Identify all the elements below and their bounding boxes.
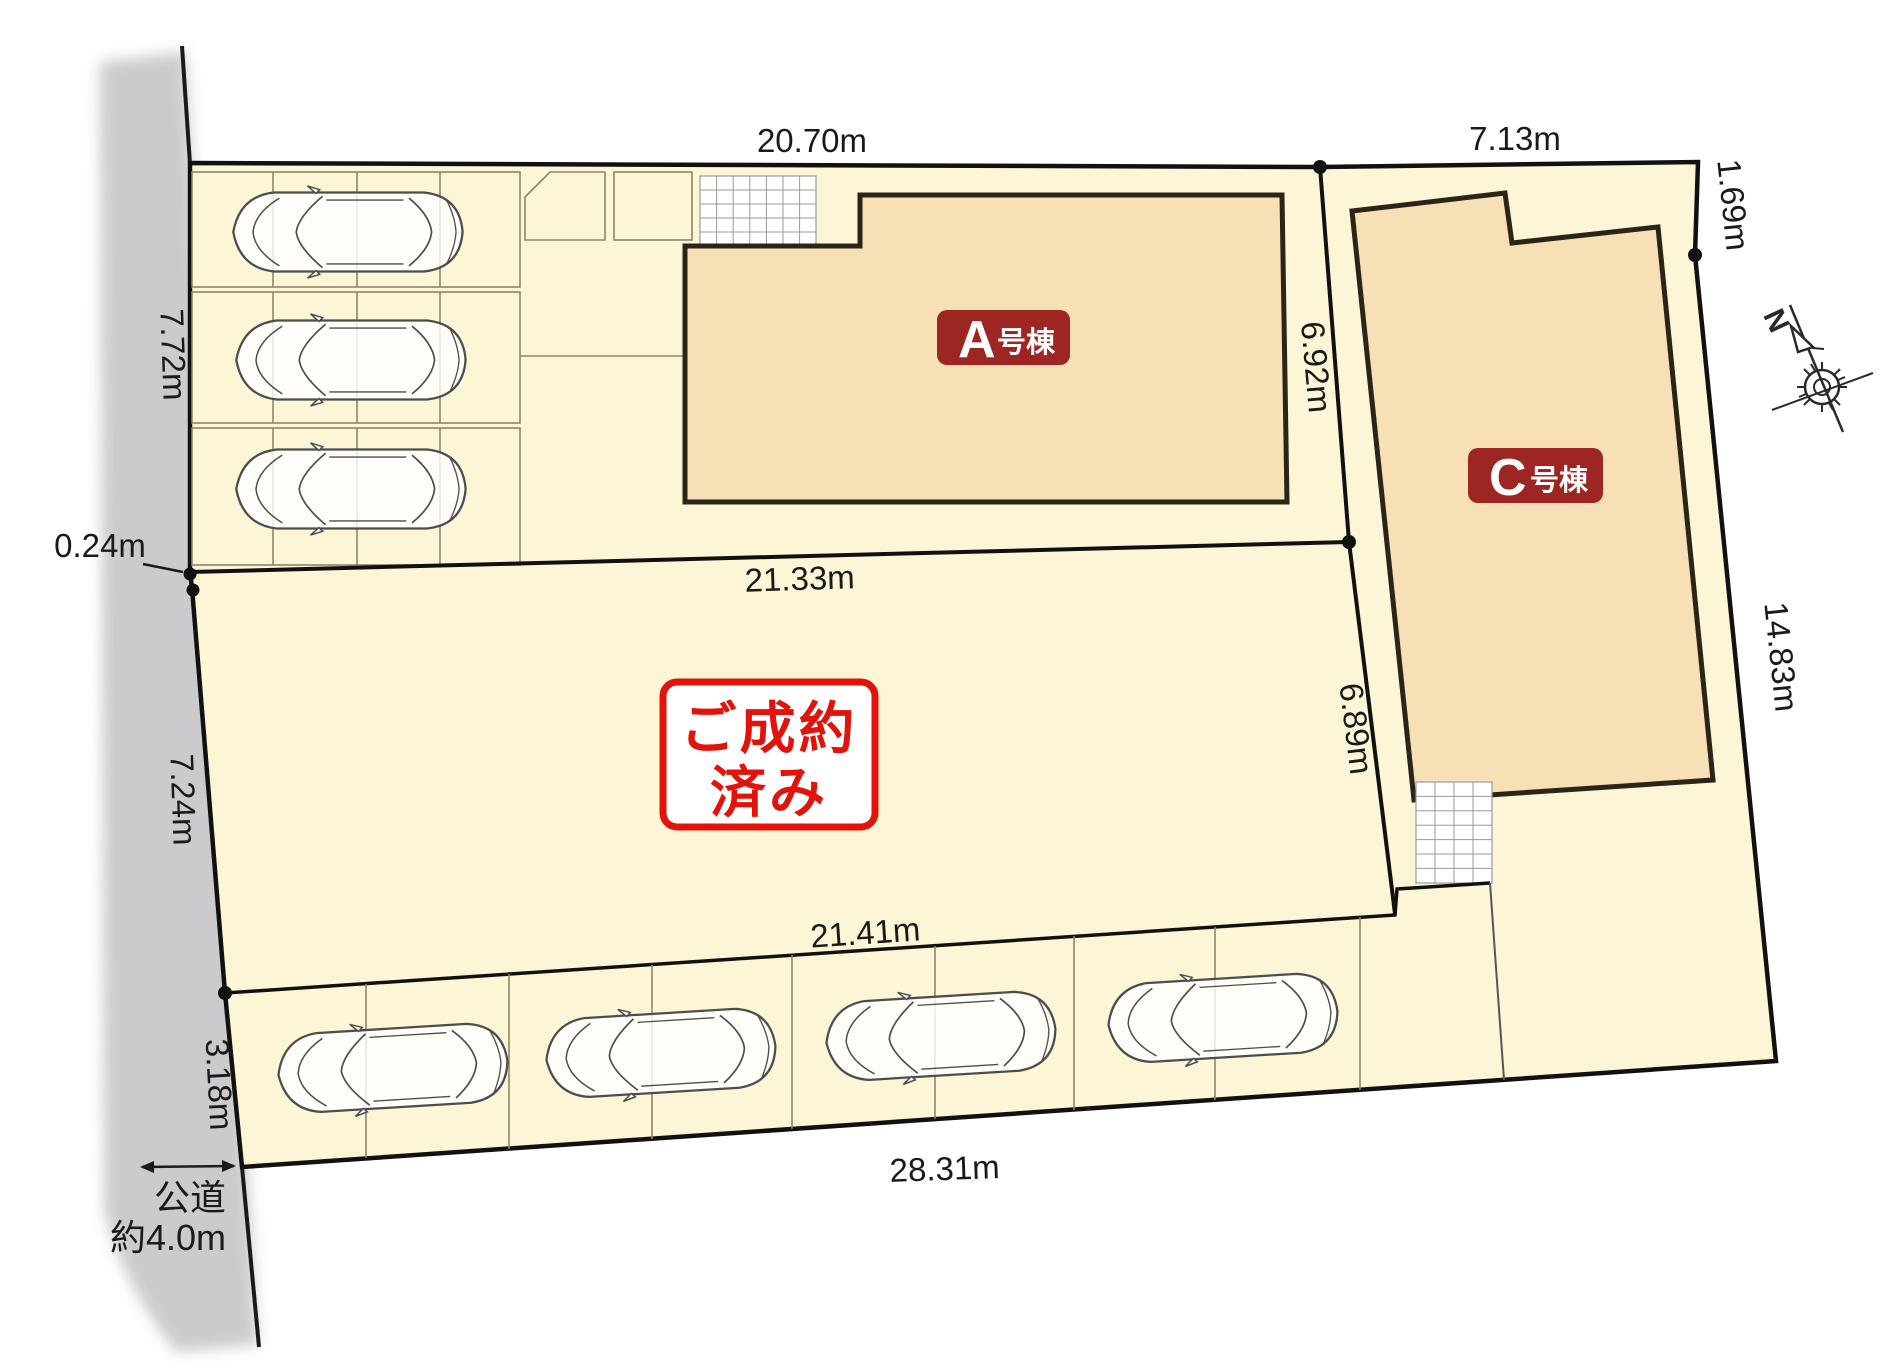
building-a-suffix: 号棟 [997,326,1056,359]
north-arrow [1791,326,1813,352]
sold-stamp-line2: 済み [710,761,828,824]
road-name: 公道 [154,1177,226,1218]
entrance-tiles-a [700,176,816,246]
parked-car [236,314,465,406]
site-plan-canvas: A 号棟 C 号棟 [0,0,1900,1371]
building-c-suffix: 号棟 [1530,464,1589,497]
dim-left-lower: 3.18m [199,1038,241,1132]
dim-left-middle: 7.24m [163,753,203,846]
compass-main-line [1790,305,1843,432]
dim-parking-row-top: 21.41m [809,910,921,954]
parked-car [236,443,465,535]
building-c-letter: C [1489,449,1527,507]
dim-bottom: 28.31m [889,1148,1000,1189]
entrance-tiles-c [1416,782,1492,883]
building-c-label: C 号棟 [1468,448,1603,507]
compass-rose-spokes [1797,362,1847,412]
sold-stamp: ご成約 済み [663,682,875,827]
compass-tick [1812,348,1824,349]
sold-stamp-line1: ご成約 [681,697,858,760]
building-a-label: A 号棟 [937,310,1070,369]
parked-car [233,186,462,278]
road-width: 約4.0m [110,1217,226,1258]
dim-left-jog-text: 0.24m [54,527,146,564]
dim-top-main: 20.70m [757,122,867,159]
site-plan-drawing: A 号棟 C 号棟 [0,0,1900,1371]
dim-middle-upper: 21.33m [744,558,855,598]
dim-left-upper: 7.72m [153,308,193,401]
dim-top-right: 7.13m [1469,120,1561,157]
dim-right-side: 14.83m [1757,600,1805,713]
north-compass: N [1758,303,1873,432]
dim-right-upper: 1.69m [1710,157,1756,252]
building-a-letter: A [958,311,996,369]
